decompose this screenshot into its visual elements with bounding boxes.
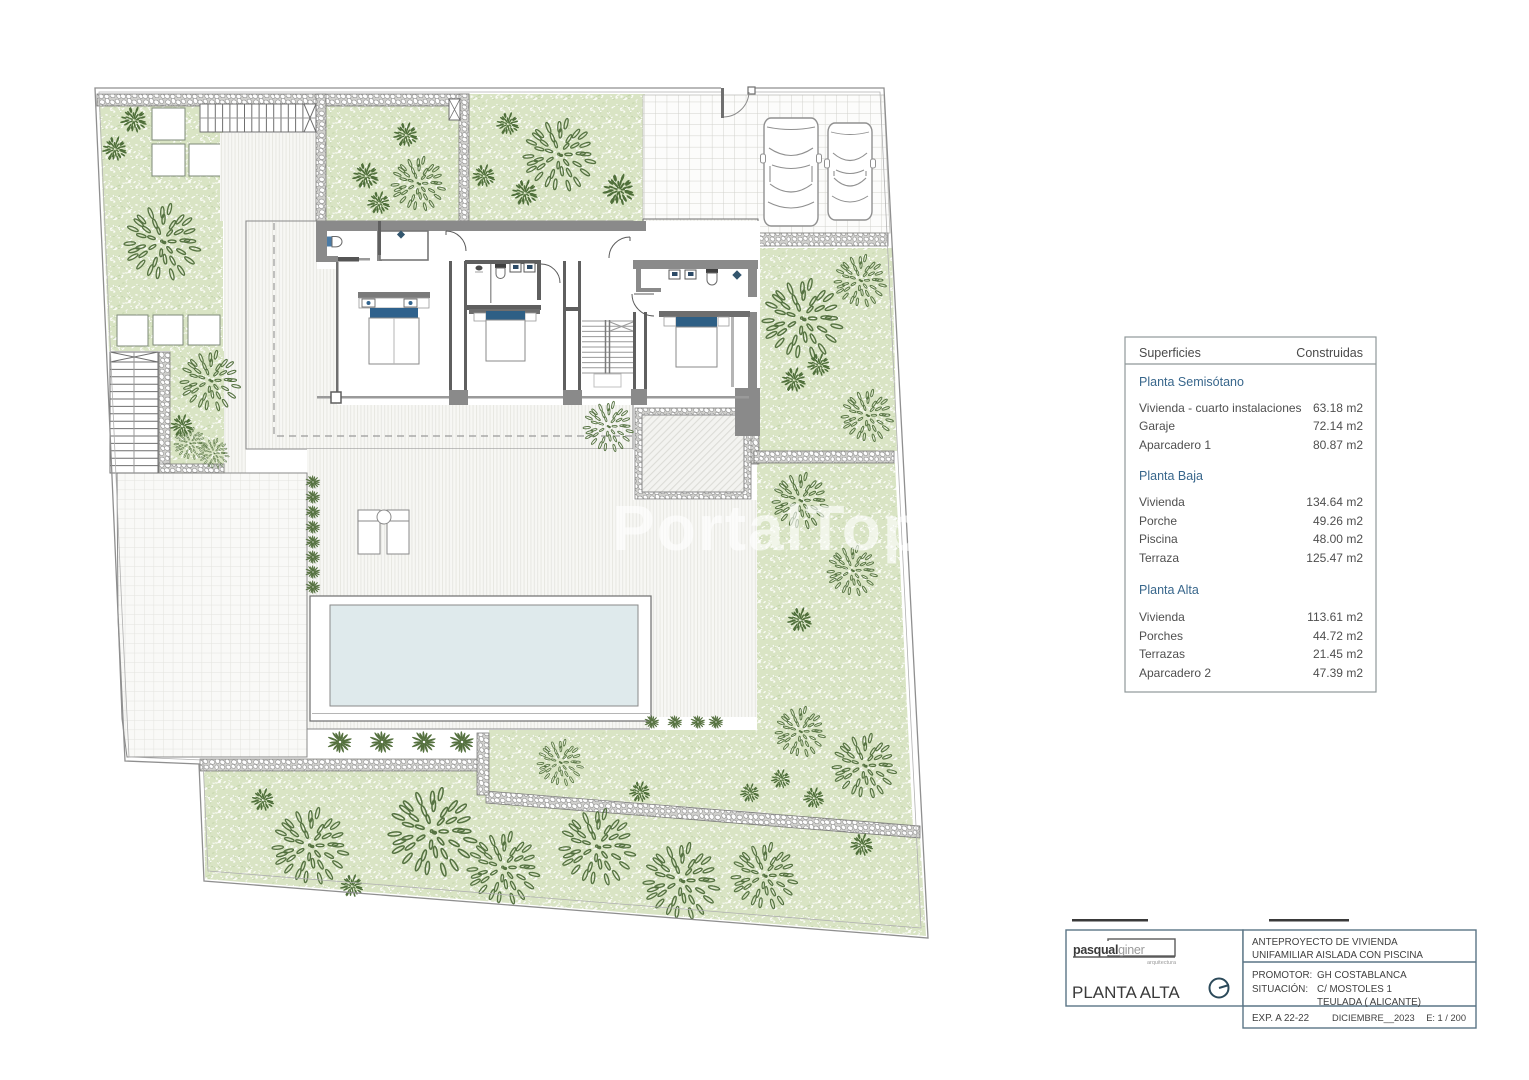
- svg-text:63.18 m2: 63.18 m2: [1313, 401, 1363, 415]
- svg-text:Terraza: Terraza: [1139, 551, 1179, 565]
- svg-text:DICIEMBRE__2023: DICIEMBRE__2023: [1332, 1013, 1415, 1023]
- svg-text:Aparcadero 1: Aparcadero 1: [1139, 438, 1211, 452]
- svg-text:21.45 m2: 21.45 m2: [1313, 647, 1363, 661]
- svg-text:arquitectura: arquitectura: [1147, 960, 1177, 966]
- svg-text:Porche: Porche: [1139, 514, 1177, 528]
- svg-text:134.64 m2: 134.64 m2: [1306, 495, 1363, 509]
- svg-text:Planta Baja: Planta Baja: [1139, 469, 1203, 483]
- svg-text:125.47 m2: 125.47 m2: [1306, 551, 1363, 565]
- svg-text:Vivienda - cuarto instalacione: Vivienda - cuarto instalaciones: [1139, 401, 1302, 415]
- svg-text:49.26 m2: 49.26 m2: [1313, 514, 1363, 528]
- svg-text:PROMOTOR:: PROMOTOR:: [1252, 970, 1312, 981]
- svg-text:ANTEPROYECTO DE VIVIENDA: ANTEPROYECTO DE VIVIENDA: [1252, 937, 1398, 948]
- svg-text:113.61 m2: 113.61 m2: [1307, 610, 1363, 624]
- svg-text:GH COSTABLANCA: GH COSTABLANCA: [1317, 970, 1407, 981]
- svg-text:Porches: Porches: [1139, 629, 1183, 643]
- svg-text:PortalTop: PortalTop: [612, 492, 924, 564]
- svg-text:TEULADA ( ALICANTE): TEULADA ( ALICANTE): [1317, 997, 1421, 1008]
- svg-text:72.14 m2: 72.14 m2: [1313, 419, 1363, 433]
- svg-text:48.00 m2: 48.00 m2: [1313, 532, 1363, 546]
- svg-text:Vivienda: Vivienda: [1139, 610, 1185, 624]
- svg-text:47.39 m2: 47.39 m2: [1313, 666, 1363, 680]
- svg-text:Aparcadero 2: Aparcadero 2: [1139, 666, 1211, 680]
- svg-text:Superficies: Superficies: [1139, 346, 1201, 360]
- svg-text:Construidas: Construidas: [1296, 346, 1363, 360]
- svg-text:pasqualginer: pasqualginer: [1073, 943, 1145, 957]
- svg-text:SITUACIÓN:: SITUACIÓN:: [1252, 984, 1308, 995]
- svg-text:80.87 m2: 80.87 m2: [1313, 438, 1363, 452]
- svg-text:E: 1 / 200: E: 1 / 200: [1426, 1013, 1466, 1023]
- svg-text:Terrazas: Terrazas: [1139, 647, 1185, 661]
- svg-text:44.72 m2: 44.72 m2: [1313, 629, 1363, 643]
- svg-text:Garaje: Garaje: [1139, 419, 1175, 433]
- svg-text:Planta Alta: Planta Alta: [1139, 583, 1199, 597]
- svg-text:C/ MOSTOLES 1: C/ MOSTOLES 1: [1317, 984, 1392, 995]
- svg-text:EXP. A 22-22: EXP. A 22-22: [1252, 1013, 1309, 1024]
- svg-text:Planta Semisótano: Planta Semisótano: [1139, 375, 1244, 389]
- svg-text:Vivienda: Vivienda: [1139, 495, 1185, 509]
- svg-text:PLANTA ALTA: PLANTA ALTA: [1072, 983, 1180, 1002]
- svg-text:Piscina: Piscina: [1139, 532, 1178, 546]
- svg-text:UNIFAMILIAR AISLADA CON PISCIN: UNIFAMILIAR AISLADA CON PISCINA: [1252, 950, 1423, 961]
